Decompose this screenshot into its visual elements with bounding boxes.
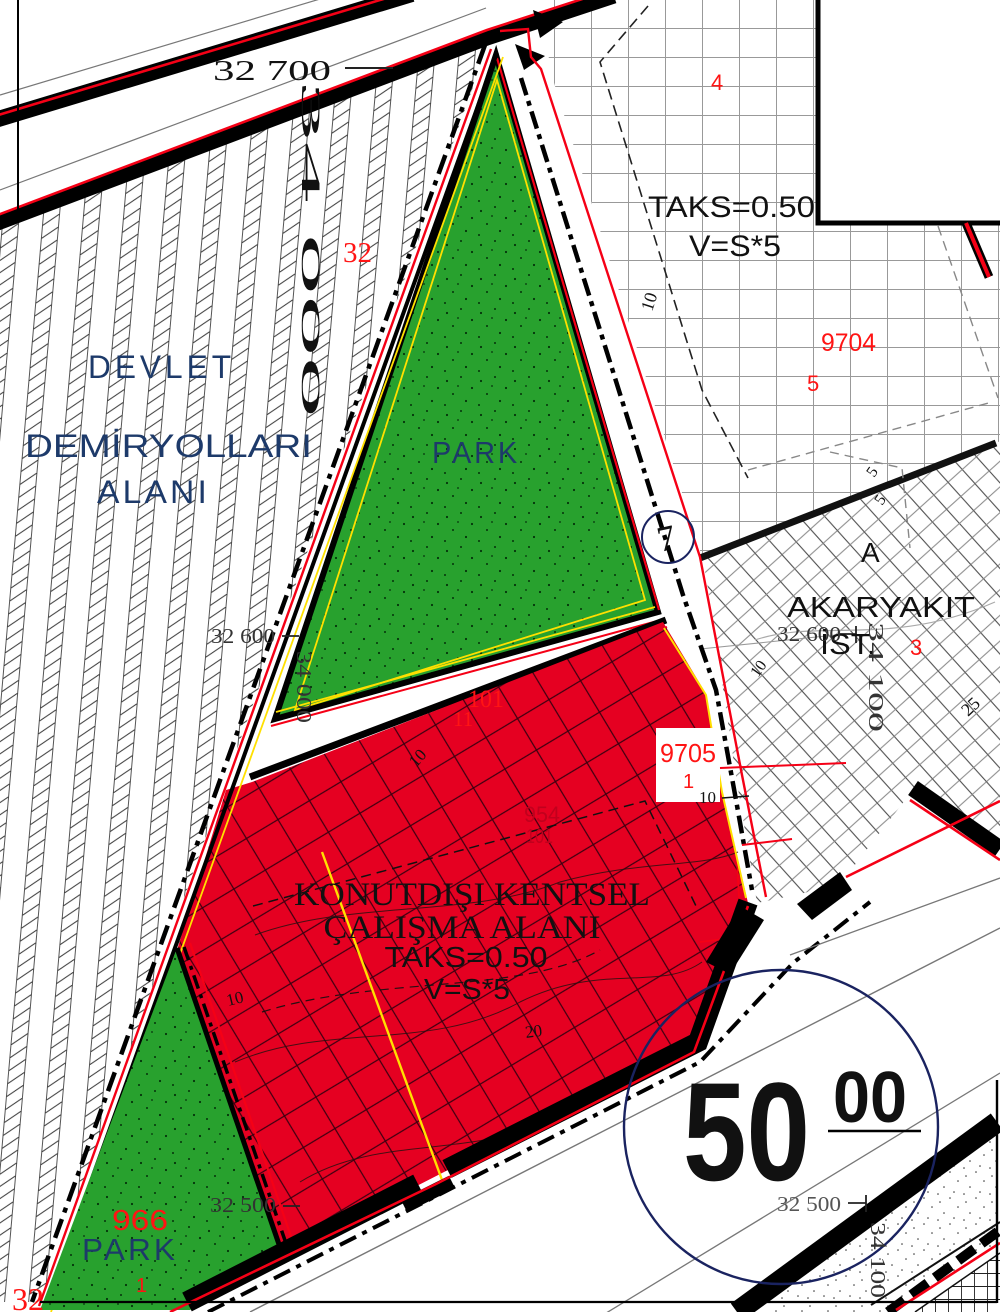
parcel-954: 954 — [524, 802, 560, 827]
parcel-1-south: 1 — [136, 1275, 147, 1297]
zoning-plan-map: 32 70034 00032DEVLETDEMİRYOLLARIALANIPAR… — [0, 0, 1000, 1312]
coord-32500-left: 32 500 — [210, 1193, 276, 1217]
parcel-9705: 9705 — [660, 738, 716, 768]
dim-20: 20 — [524, 1021, 543, 1042]
block-a: A — [861, 537, 880, 568]
coord-32600-right: 32 600 — [777, 622, 841, 646]
parcel-5: 5 — [807, 371, 819, 396]
parcel-101: 101 — [468, 686, 504, 713]
rule-taks-red: TAKS=0.50 — [385, 942, 548, 974]
parcel-9704: 9704 — [821, 329, 876, 357]
parcel-101b: 101 — [526, 826, 553, 848]
zone-akaryakit: AKARYAKIT — [787, 592, 975, 624]
zone-devlet: DEVLET — [88, 349, 235, 385]
parcel-32-bl: 32 — [12, 1281, 44, 1312]
elev-00: 00 — [833, 1058, 907, 1138]
blank-corner-box — [818, 0, 1000, 223]
zone-park-south: PARK — [82, 1232, 178, 1267]
zone-demiryollari: DEMİRYOLLARI — [25, 428, 312, 464]
elev-50: 50 — [683, 1053, 810, 1210]
zone-alani: ALANI — [97, 474, 210, 510]
parcel-3: 3 — [910, 635, 922, 660]
parcel-4: 4 — [711, 70, 723, 95]
zoning-plan-page: 32 70034 00032DEVLETDEMİRYOLLARIALANIPAR… — [0, 0, 1000, 1312]
coord-32600-left: 32 600 — [211, 624, 275, 648]
zone-park-north: PARK — [432, 435, 520, 470]
coord-34000-mid: 34 000 — [292, 651, 316, 723]
parcel-11: 11 — [453, 707, 473, 731]
rule-v-north: V=S*5 — [689, 230, 781, 263]
dim-10-9705: 10 — [699, 788, 716, 807]
parcel-32-top: 32 — [343, 237, 372, 269]
zone-konut-2: ÇALIŞMA ALANI — [324, 910, 601, 946]
coord-34100-right: 34 100 — [864, 622, 888, 732]
coord-34100-bottom: 34 100 — [866, 1222, 890, 1298]
coord-34000-top: 34 000 — [296, 80, 325, 418]
parcel-1-mid: 1 — [683, 771, 694, 793]
zone-konut-1: KONUTDIŞI KENTSEL — [294, 877, 650, 913]
rule-taks-north: TAKS=0.50 — [648, 191, 815, 224]
rule-v-red: V=S*5 — [424, 974, 510, 1006]
